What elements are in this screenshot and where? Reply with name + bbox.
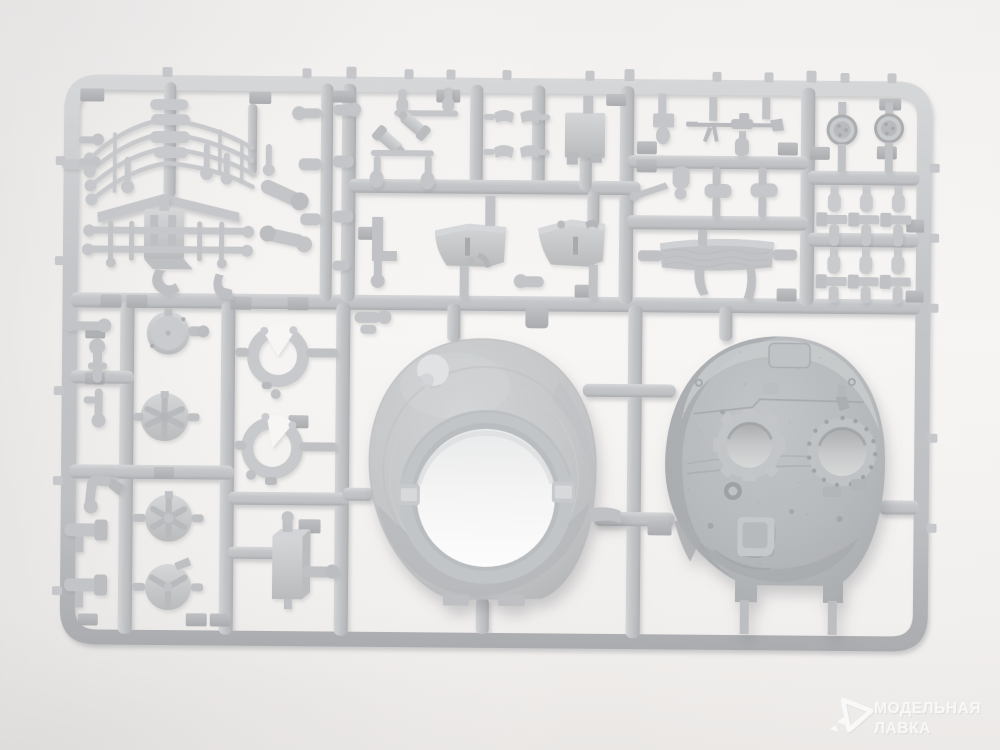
svg-text:МОДЕЛЬНАЯ: МОДЕЛЬНАЯ <box>874 700 981 717</box>
svg-text:ЛАВКА: ЛАВКА <box>874 720 931 737</box>
